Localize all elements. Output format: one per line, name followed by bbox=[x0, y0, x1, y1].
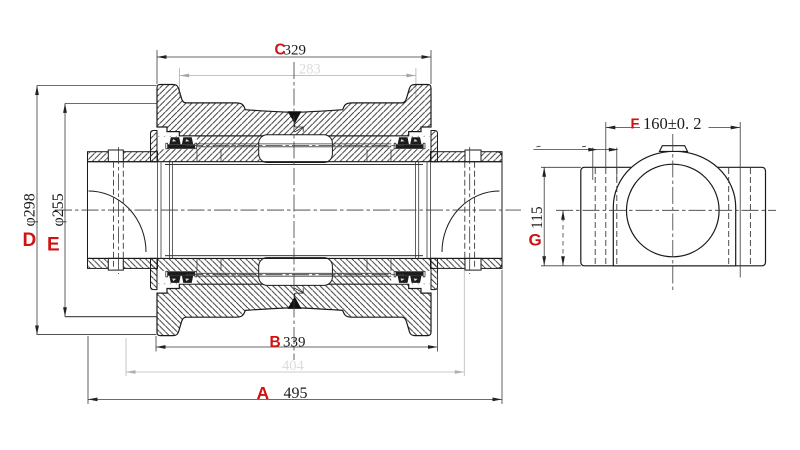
svg-text:160±0. 2: 160±0. 2 bbox=[643, 114, 702, 133]
svg-text:283: 283 bbox=[299, 62, 321, 78]
svg-text:D: D bbox=[23, 230, 37, 251]
svg-text:G: G bbox=[529, 231, 542, 250]
svg-text:φ255: φ255 bbox=[50, 193, 67, 226]
svg-text:329: 329 bbox=[284, 43, 307, 59]
svg-text:A: A bbox=[257, 383, 270, 403]
svg-text:F: F bbox=[631, 117, 640, 133]
svg-text:φ298: φ298 bbox=[22, 193, 39, 226]
svg-text:B: B bbox=[270, 334, 281, 351]
svg-text:495: 495 bbox=[284, 385, 308, 402]
svg-text:339: 339 bbox=[283, 335, 306, 351]
svg-text:E: E bbox=[47, 235, 60, 256]
svg-text:404: 404 bbox=[282, 358, 305, 374]
svg-text:C: C bbox=[275, 42, 286, 59]
svg-text:115: 115 bbox=[529, 206, 546, 229]
